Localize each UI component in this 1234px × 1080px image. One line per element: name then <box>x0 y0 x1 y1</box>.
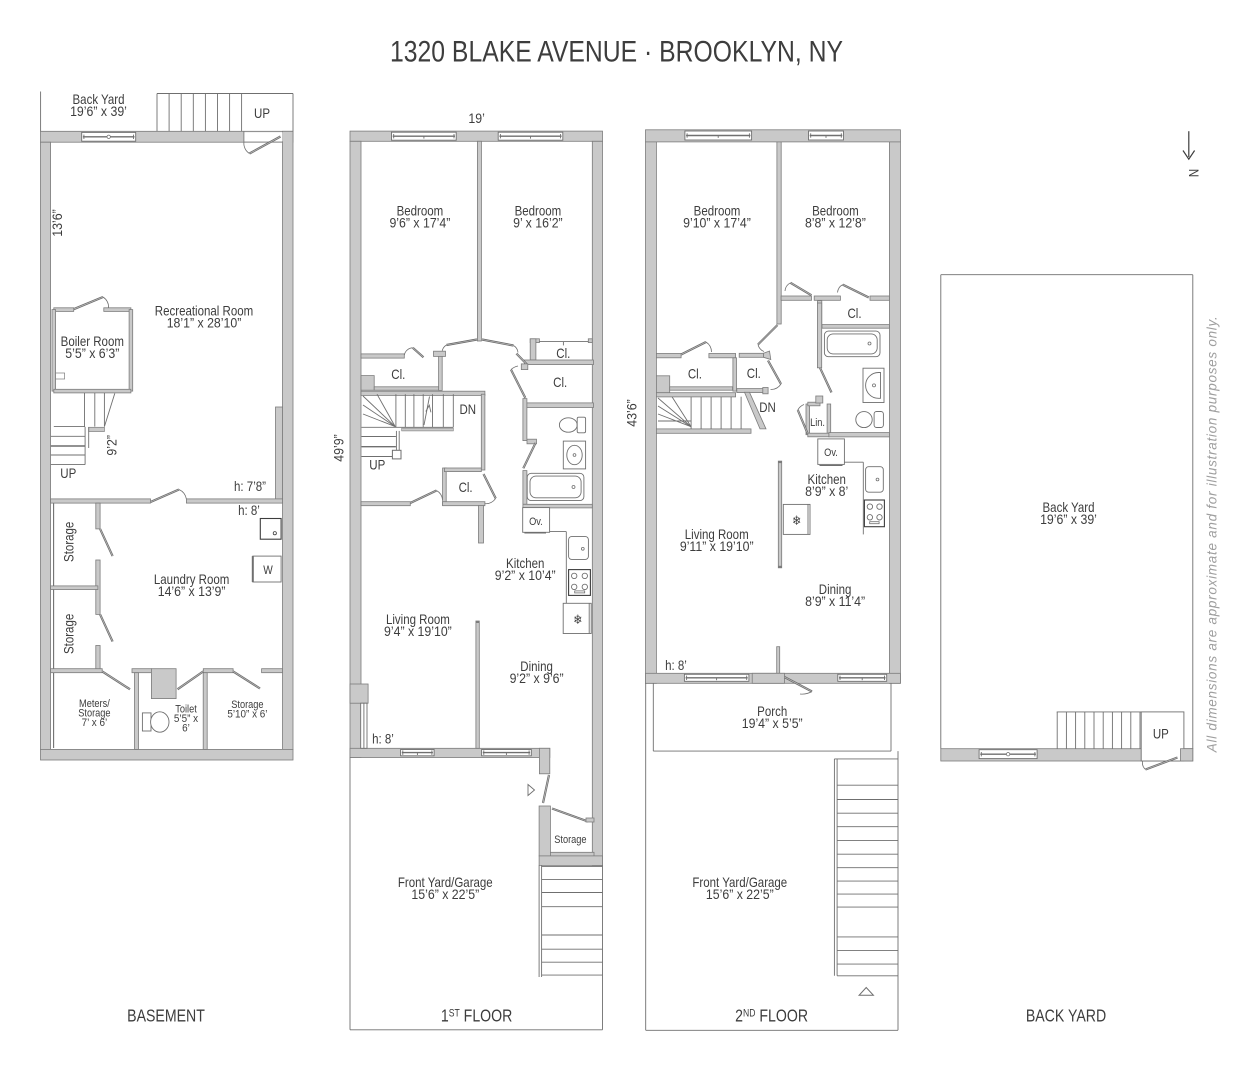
svg-text:UP: UP <box>1153 727 1169 742</box>
svg-text:Cl.: Cl. <box>391 367 405 382</box>
svg-text:15’6” x 22’5”: 15’6” x 22’5” <box>411 887 479 903</box>
svg-text:Cl.: Cl. <box>747 366 761 381</box>
svg-text:9’6” x 17’4”: 9’6” x 17’4” <box>389 215 450 231</box>
svg-text:9’2”: 9’2” <box>104 435 120 456</box>
svg-text:15’6” x 22’5”: 15’6” x 22’5” <box>706 887 774 903</box>
svg-text:BACK YARD: BACK YARD <box>1026 1006 1106 1026</box>
svg-text:Cl.: Cl. <box>847 306 861 321</box>
svg-text:7’ x 6’: 7’ x 6’ <box>82 718 107 730</box>
svg-text:13’6”: 13’6” <box>49 209 65 236</box>
svg-text:1320 BLAKE AVENUE · BROOKLYN,: 1320 BLAKE AVENUE · BROOKLYN, NY <box>390 34 843 68</box>
svg-text:19’6” x 39’: 19’6” x 39’ <box>70 104 127 120</box>
svg-text:N: N <box>1186 169 1202 177</box>
svg-text:8’8” x 12’8”: 8’8” x 12’8” <box>805 215 866 231</box>
svg-text:BASEMENT: BASEMENT <box>127 1006 205 1026</box>
svg-text:Cl.: Cl. <box>553 375 567 390</box>
svg-text:9’ x 16’2”: 9’ x 16’2” <box>513 215 563 231</box>
svg-text:Storage: Storage <box>62 522 77 562</box>
svg-text:9’11” x 19’10”: 9’11” x 19’10” <box>680 539 754 555</box>
svg-text:h: 8’: h: 8’ <box>372 732 394 747</box>
svg-text:14’6” x 13’9”: 14’6” x 13’9” <box>158 584 226 600</box>
svg-text:h: 8’: h: 8’ <box>665 658 687 673</box>
svg-text:W: W <box>263 564 273 577</box>
svg-text:❄: ❄ <box>573 612 582 627</box>
svg-text:Storage: Storage <box>554 834 587 846</box>
svg-text:19’6” x 39’: 19’6” x 39’ <box>1040 512 1097 528</box>
svg-text:Cl.: Cl. <box>459 480 473 495</box>
svg-text:UP: UP <box>60 466 76 481</box>
svg-text:19’: 19’ <box>468 110 485 126</box>
svg-text:9’2” x 9’6”: 9’2” x 9’6” <box>510 671 564 687</box>
svg-text:Cl.: Cl. <box>556 346 570 361</box>
svg-text:DN: DN <box>759 400 776 415</box>
svg-text:8’9” x 8’: 8’9” x 8’ <box>805 484 848 500</box>
svg-text:UP: UP <box>254 106 270 121</box>
svg-text:43’6”: 43’6” <box>624 399 640 426</box>
svg-text:Ov.: Ov. <box>824 447 838 459</box>
svg-text:All dimensions are approximate: All dimensions are approximate and for i… <box>1205 316 1220 754</box>
svg-text:5’5” x 6’3”: 5’5” x 6’3” <box>65 346 119 362</box>
svg-text:8’9” x 11’4”: 8’9” x 11’4” <box>805 594 865 610</box>
svg-text:Ov.: Ov. <box>529 516 543 528</box>
svg-text:❄: ❄ <box>792 513 801 528</box>
svg-text:h: 8’: h: 8’ <box>238 503 260 518</box>
svg-text:18’1” x 28’10”: 18’1” x 28’10” <box>167 315 242 331</box>
svg-text:Storage: Storage <box>62 614 77 654</box>
svg-text:Cl.: Cl. <box>688 367 702 382</box>
svg-text:DN: DN <box>459 402 476 417</box>
svg-text:9’2” x 10’4”: 9’2” x 10’4” <box>495 568 556 584</box>
svg-text:9’4” x 19’10”: 9’4” x 19’10” <box>384 624 452 640</box>
svg-text:h: 7’8”: h: 7’8” <box>234 479 266 494</box>
svg-text:9’10” x 17’4”: 9’10” x 17’4” <box>683 215 751 231</box>
svg-text:Lin.: Lin. <box>810 417 825 429</box>
svg-text:5’10” x 6’: 5’10” x 6’ <box>227 709 267 721</box>
svg-text:19’4” x 5’5”: 19’4” x 5’5” <box>742 716 803 732</box>
svg-text:49’9”: 49’9” <box>331 434 347 461</box>
svg-text:UP: UP <box>369 458 385 473</box>
svg-text:6’: 6’ <box>182 723 190 735</box>
